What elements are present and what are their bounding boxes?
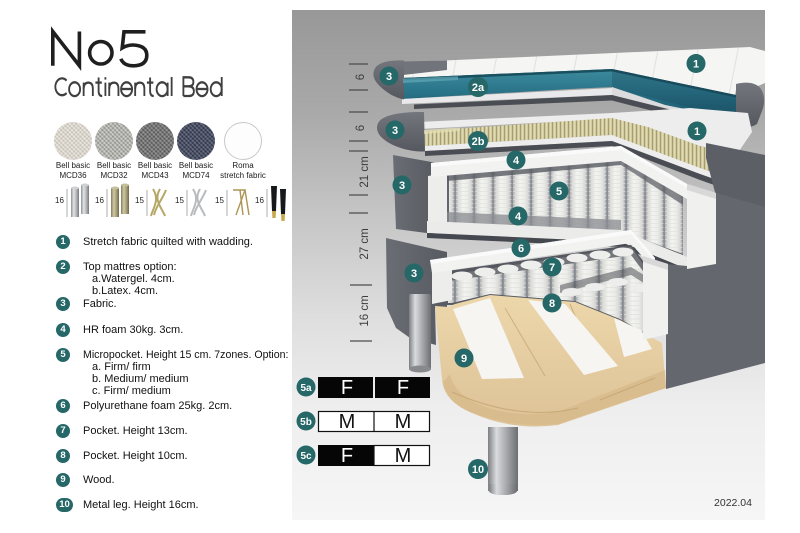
svg-text:6: 6 — [518, 243, 524, 255]
svg-text:8: 8 — [549, 298, 555, 310]
svg-text:3: 3 — [386, 71, 392, 83]
svg-text:5b: 5b — [300, 417, 312, 428]
svg-text:10: 10 — [472, 464, 484, 476]
svg-text:M: M — [395, 445, 412, 467]
svg-text:16: 16 — [95, 196, 104, 205]
svg-text:4: 4 — [515, 211, 522, 223]
svg-text:9: 9 — [461, 353, 467, 365]
svg-text:6: 6 — [355, 125, 367, 131]
svg-text:1: 1 — [694, 126, 700, 138]
svg-text:F: F — [341, 377, 353, 399]
svg-text:F: F — [397, 377, 409, 399]
svg-text:15: 15 — [215, 196, 224, 205]
svg-text:15: 15 — [175, 196, 184, 205]
svg-text:15: 15 — [135, 196, 144, 205]
svg-text:21 cm: 21 cm — [359, 156, 371, 187]
svg-text:M: M — [395, 411, 412, 433]
svg-text:16: 16 — [255, 196, 264, 205]
svg-text:2b: 2b — [472, 136, 485, 148]
svg-text:M: M — [339, 411, 356, 433]
svg-text:6: 6 — [355, 74, 367, 80]
svg-text:16: 16 — [55, 196, 64, 205]
svg-text:27 cm: 27 cm — [359, 228, 371, 259]
svg-text:7: 7 — [549, 262, 555, 274]
svg-text:4: 4 — [513, 155, 520, 167]
svg-text:1: 1 — [693, 59, 699, 71]
svg-text:3: 3 — [399, 180, 405, 192]
svg-text:2022.04: 2022.04 — [714, 497, 752, 509]
svg-text:3: 3 — [392, 125, 398, 137]
svg-text:5c: 5c — [300, 451, 312, 462]
svg-text:5: 5 — [556, 186, 562, 198]
svg-text:5a: 5a — [300, 383, 312, 394]
svg-text:2a: 2a — [472, 82, 485, 94]
svg-text:3: 3 — [411, 268, 417, 280]
svg-text:16 cm: 16 cm — [359, 295, 371, 326]
svg-text:F: F — [341, 445, 353, 467]
